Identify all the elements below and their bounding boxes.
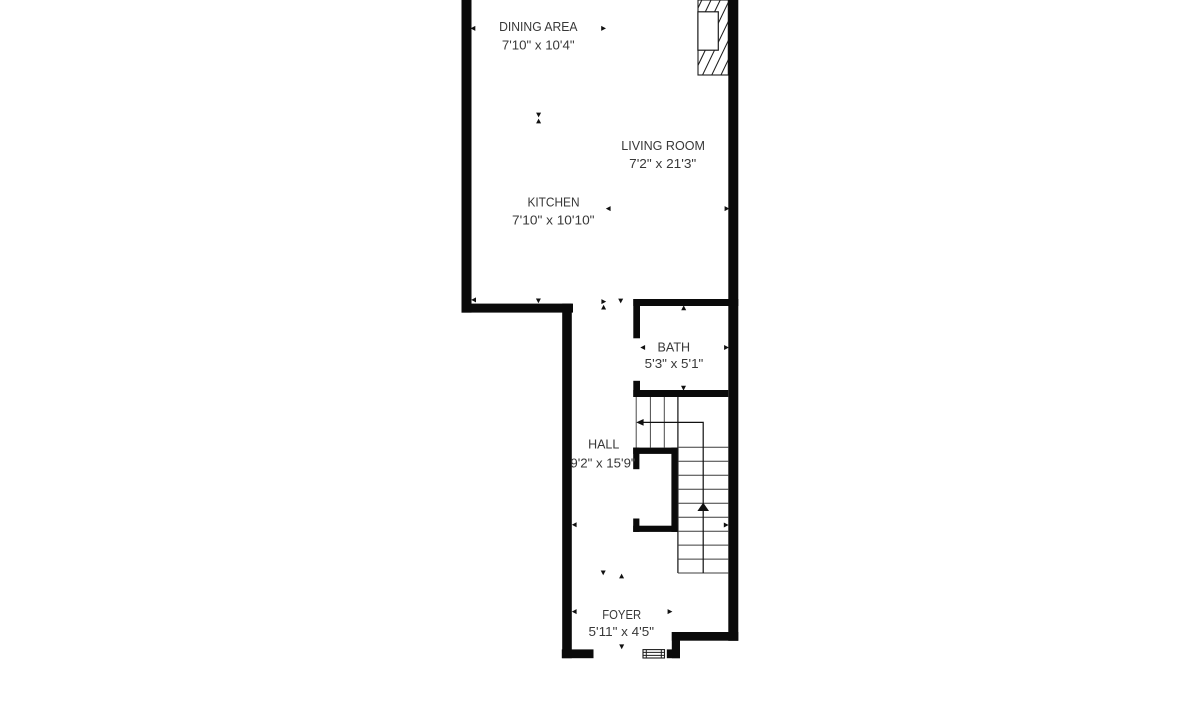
- svg-text:DINING AREA: DINING AREA: [499, 20, 578, 34]
- svg-text:7'2" x 21'3": 7'2" x 21'3": [629, 156, 696, 171]
- svg-text:KITCHEN: KITCHEN: [527, 196, 579, 210]
- svg-text:BATH: BATH: [658, 340, 691, 354]
- svg-text:9'2" x 15'9": 9'2" x 15'9": [570, 456, 636, 471]
- svg-text:5'11" x 4'5": 5'11" x 4'5": [589, 624, 655, 639]
- svg-text:7'10" x 10'4": 7'10" x 10'4": [502, 38, 575, 53]
- svg-text:7'10" x 10'10": 7'10" x 10'10": [512, 213, 595, 228]
- svg-text:FOYER: FOYER: [602, 608, 641, 622]
- svg-text:5'3" x 5'1": 5'3" x 5'1": [645, 356, 704, 371]
- svg-text:LIVING ROOM: LIVING ROOM: [621, 139, 705, 153]
- svg-text:HALL: HALL: [588, 438, 619, 452]
